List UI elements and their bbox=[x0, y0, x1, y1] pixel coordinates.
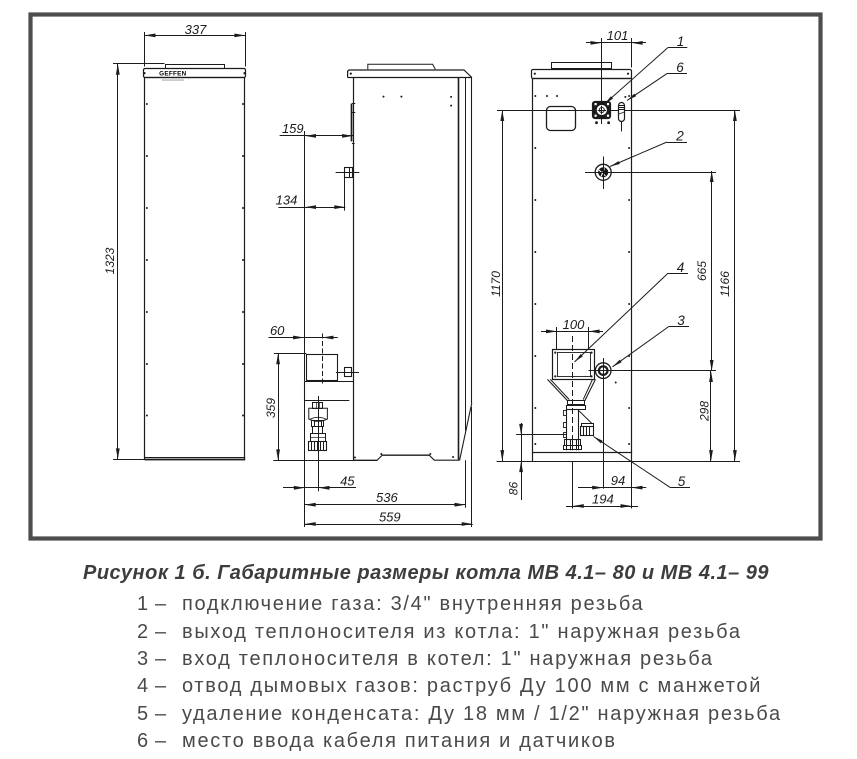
svg-text:1166: 1166 bbox=[718, 271, 732, 297]
svg-text:134: 134 bbox=[276, 193, 298, 208]
svg-text:3: 3 bbox=[677, 313, 685, 328]
svg-text:5: 5 bbox=[678, 474, 686, 489]
svg-text:337: 337 bbox=[185, 22, 207, 37]
svg-text:GEFFEN: GEFFEN bbox=[159, 71, 186, 78]
svg-text:536: 536 bbox=[376, 490, 398, 505]
svg-text:4: 4 bbox=[677, 260, 685, 275]
svg-text:45: 45 bbox=[340, 473, 355, 488]
svg-text:2: 2 bbox=[675, 129, 684, 144]
svg-text:1: 1 bbox=[677, 34, 685, 49]
svg-text:559: 559 bbox=[379, 510, 401, 525]
svg-text:665: 665 bbox=[695, 261, 709, 281]
svg-text:194: 194 bbox=[592, 491, 614, 506]
svg-text:298: 298 bbox=[698, 401, 712, 422]
svg-text:101: 101 bbox=[607, 28, 629, 43]
svg-text:94: 94 bbox=[611, 473, 625, 488]
svg-text:60: 60 bbox=[270, 323, 285, 338]
svg-text:1170: 1170 bbox=[489, 271, 503, 297]
svg-text:86: 86 bbox=[507, 482, 521, 496]
svg-text:159: 159 bbox=[282, 121, 304, 136]
svg-text:359: 359 bbox=[264, 398, 278, 418]
svg-text:1323: 1323 bbox=[103, 247, 117, 274]
svg-text:100: 100 bbox=[563, 317, 585, 332]
svg-text:6: 6 bbox=[676, 60, 684, 75]
